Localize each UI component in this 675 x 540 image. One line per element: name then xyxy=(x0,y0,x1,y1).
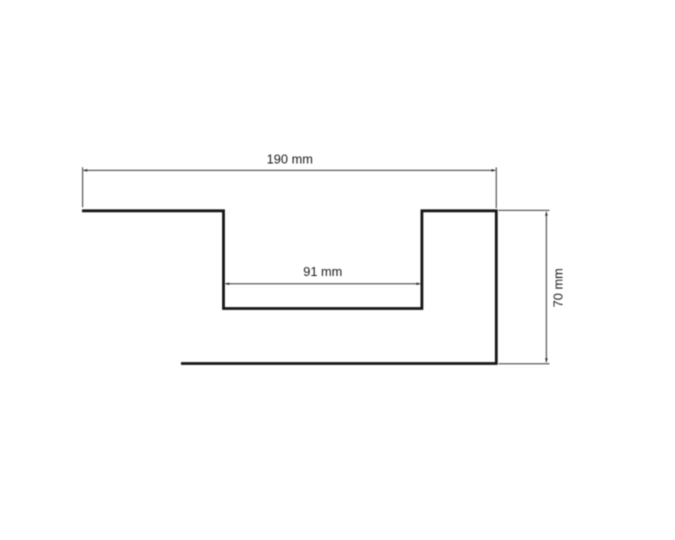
svg-text:91 mm: 91 mm xyxy=(303,264,342,279)
svg-text:190 mm: 190 mm xyxy=(267,152,313,167)
svg-text:70 mm: 70 mm xyxy=(551,268,566,307)
